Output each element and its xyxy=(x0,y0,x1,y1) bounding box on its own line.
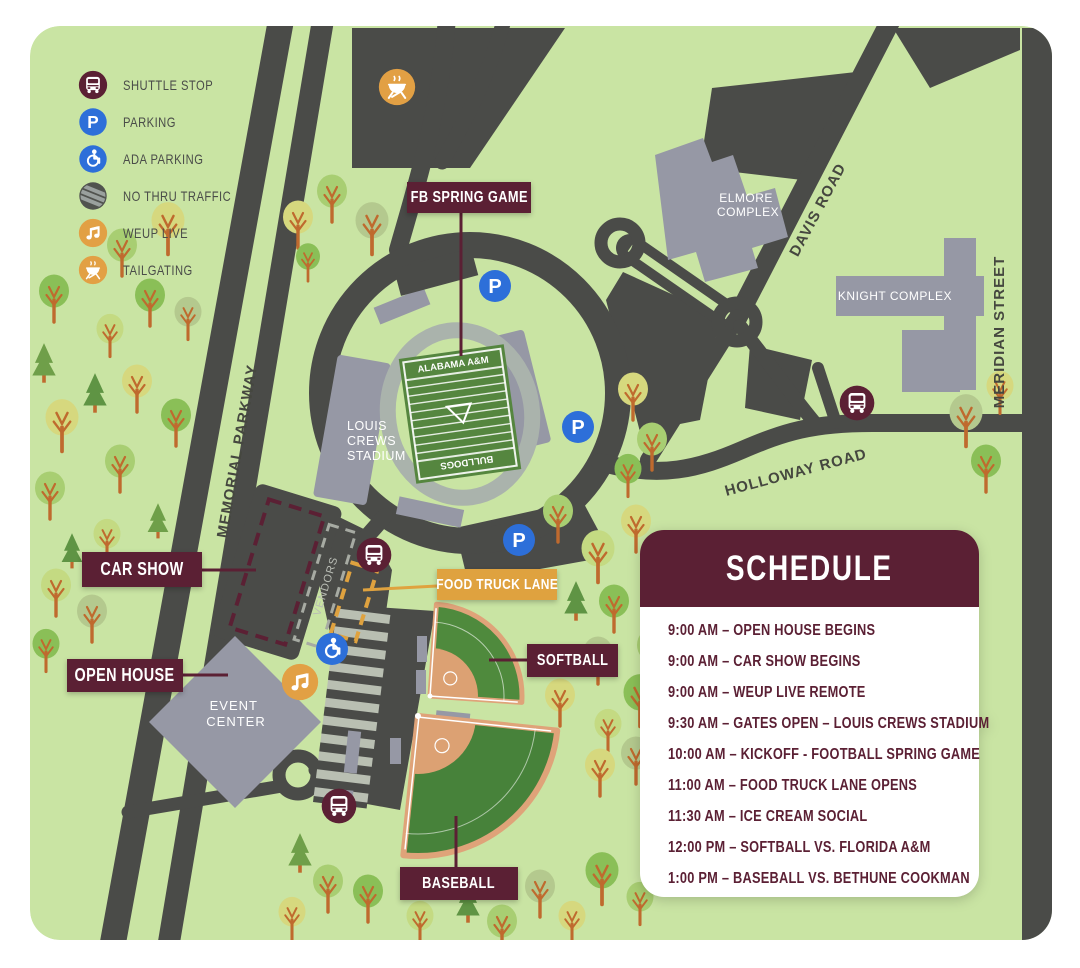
callout-baseball: BASEBALL xyxy=(400,867,518,900)
callout-label: OPEN HOUSE xyxy=(75,665,175,686)
schedule-header: SCHEDULE xyxy=(640,530,979,607)
campus-event-map: P xyxy=(0,0,1080,968)
tailgating-icon xyxy=(379,69,415,105)
baseball-bleacher xyxy=(390,738,401,764)
meridian-street-label: MERIDIAN STREET xyxy=(991,256,1008,409)
legend-row: PARKING xyxy=(78,103,258,140)
no-thru-traffic-icon xyxy=(78,181,108,211)
parking-icon xyxy=(78,107,108,137)
legend-label: NO THRU TRAFFIC xyxy=(123,188,231,204)
legend-label: TAILGATING xyxy=(123,262,193,278)
softball-bleacher xyxy=(416,670,426,694)
schedule-item: 9:00 AM – OPEN HOUSE BEGINS xyxy=(668,615,979,646)
legend-row: NO THRU TRAFFIC xyxy=(78,177,258,214)
legend-label: SHUTTLE STOP xyxy=(123,77,213,93)
schedule-item: 11:00 AM – FOOD TRUCK LANE OPENS xyxy=(668,770,979,801)
parking-icon xyxy=(503,524,535,556)
shuttle-stop-icon xyxy=(322,789,357,824)
callout-label: FB SPRING GAME xyxy=(410,189,527,207)
callout-softball: SOFTBALL xyxy=(527,644,618,677)
callout-car-show: CAR SHOW xyxy=(82,552,202,587)
road-meridian xyxy=(1022,28,1052,940)
weup-live-icon xyxy=(282,664,318,700)
parking-icon xyxy=(562,411,594,443)
callout-open-house: OPEN HOUSE xyxy=(67,659,183,692)
schedule-item: 1:00 PM – BASEBALL VS. BETHUNE COOKMAN xyxy=(668,863,979,894)
callout-food-truck-lane: FOOD TRUCK LANE xyxy=(437,569,557,600)
tailgating-icon xyxy=(78,255,108,285)
callout-label: CAR SHOW xyxy=(100,559,183,580)
schedule-item: 10:00 AM – KICKOFF - FOOTBALL SPRING GAM… xyxy=(668,739,979,770)
weup-live-icon xyxy=(78,218,108,248)
schedule-item: 9:00 AM – CAR SHOW BEGINS xyxy=(668,646,979,677)
building-knight-block xyxy=(902,330,960,392)
callout-label: FOOD TRUCK LANE xyxy=(436,576,558,593)
map-legend: SHUTTLE STOP PARKING ADA PARKING NO THRU… xyxy=(78,66,258,288)
softball-bleacher xyxy=(417,636,427,662)
ada-parking-icon xyxy=(316,633,348,665)
legend-label: PARKING xyxy=(123,114,176,130)
shuttle-stop-icon xyxy=(840,386,875,421)
legend-row: ADA PARKING xyxy=(78,140,258,177)
legend-row: WEUP LIVE xyxy=(78,214,258,251)
schedule-item: 9:30 AM – GATES OPEN – LOUIS CREWS STADI… xyxy=(668,708,979,739)
shuttle-stop-icon xyxy=(78,70,108,100)
schedule-title: SCHEDULE xyxy=(726,549,893,589)
event-center-label: EVENT CENTER xyxy=(206,698,265,729)
legend-row: TAILGATING xyxy=(78,251,258,288)
schedule-item: 12:00 PM – SOFTBALL VS. FLORIDA A&M xyxy=(668,832,979,863)
schedule-item: 9:00 AM – WEUP LIVE REMOTE xyxy=(668,677,979,708)
callout-label: BASEBALL xyxy=(423,875,496,893)
legend-row: SHUTTLE STOP xyxy=(78,66,258,103)
legend-label: WEUP LIVE xyxy=(123,225,188,241)
callout-fb-spring-game: FB SPRING GAME xyxy=(407,182,531,213)
elmore-complex-label: ELMORE COMPLEX xyxy=(717,191,779,219)
callout-label: SOFTBALL xyxy=(537,652,608,670)
schedule-body: 9:00 AM – OPEN HOUSE BEGINS 9:00 AM – CA… xyxy=(640,607,979,897)
schedule-panel: SCHEDULE 9:00 AM – OPEN HOUSE BEGINS 9:0… xyxy=(640,530,979,897)
parking-icon xyxy=(479,270,511,302)
knight-complex-label: KNIGHT COMPLEX xyxy=(838,289,952,303)
schedule-item: 11:30 AM – ICE CREAM SOCIAL xyxy=(668,801,979,832)
legend-label: ADA PARKING xyxy=(123,151,203,167)
ada-parking-icon xyxy=(78,144,108,174)
shuttle-stop-icon xyxy=(357,538,392,573)
